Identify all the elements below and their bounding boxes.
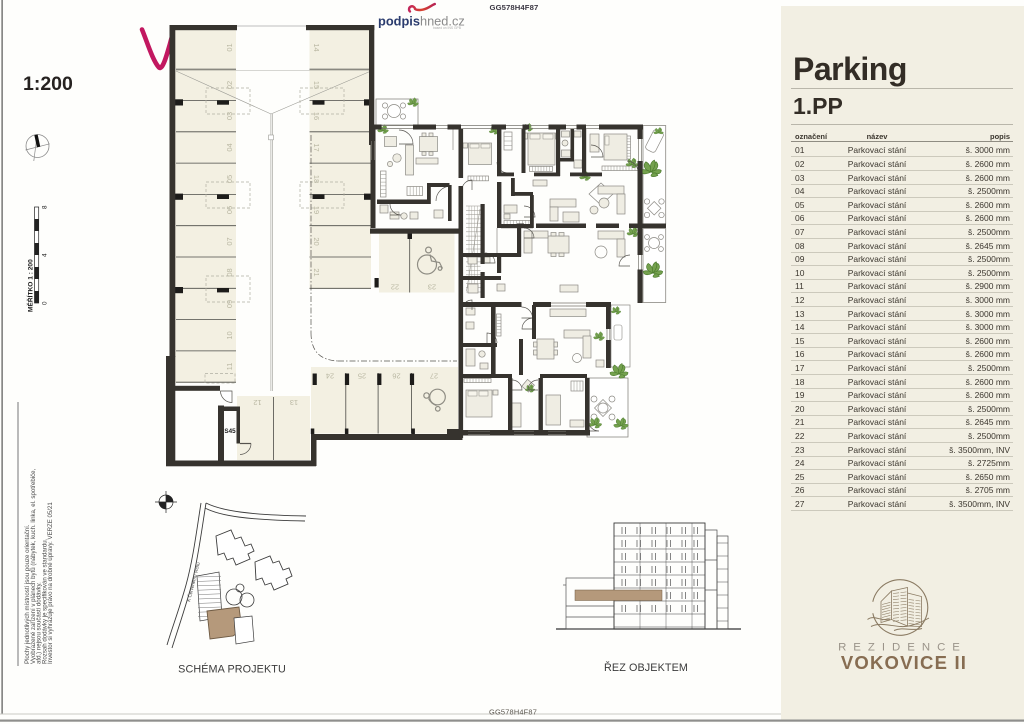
svg-text:08: 08 xyxy=(225,268,234,276)
svg-text:22: 22 xyxy=(391,283,399,292)
svg-text:06: 06 xyxy=(225,206,234,214)
svg-text:16: 16 xyxy=(312,112,321,120)
svg-text:VOKOVICE II: VOKOVICE II xyxy=(841,652,967,673)
svg-text:19: 19 xyxy=(312,206,321,214)
svg-text:1:200: 1:200 xyxy=(23,73,73,95)
svg-text:25: 25 xyxy=(358,372,366,381)
svg-text:26: 26 xyxy=(392,372,400,381)
svg-text:ŘEZ OBJEKTEM: ŘEZ OBJEKTEM xyxy=(604,661,688,674)
svg-text:05: 05 xyxy=(225,175,234,183)
svg-text:24: 24 xyxy=(326,372,334,381)
svg-text:20: 20 xyxy=(312,237,321,245)
svg-text:GG578H4F87: GG578H4F87 xyxy=(490,3,539,12)
svg-text:23: 23 xyxy=(428,283,436,292)
svg-text:S45: S45 xyxy=(224,428,236,435)
svg-text:Investor si vyhrazuje právo na: Investor si vyhrazuje právo na drobné úp… xyxy=(47,502,54,664)
svg-text:21: 21 xyxy=(312,268,321,276)
svg-text:18: 18 xyxy=(312,175,321,183)
svg-text:8: 8 xyxy=(42,205,49,209)
svg-text:17: 17 xyxy=(312,143,321,151)
svg-text:12: 12 xyxy=(253,398,261,407)
svg-text:11: 11 xyxy=(225,363,234,371)
svg-text:09: 09 xyxy=(225,300,234,308)
svg-text:MĚŘÍTKO 1 : 200: MĚŘÍTKO 1 : 200 xyxy=(26,259,35,312)
svg-text:0: 0 xyxy=(42,301,49,305)
svg-text:04: 04 xyxy=(225,143,234,151)
svg-text:27: 27 xyxy=(430,372,438,381)
svg-text:07: 07 xyxy=(225,237,234,245)
svg-text:4: 4 xyxy=(42,253,49,257)
svg-text:10: 10 xyxy=(225,331,234,339)
svg-text:03: 03 xyxy=(225,112,234,120)
svg-text:14: 14 xyxy=(312,43,321,51)
svg-text:GG578H4F87: GG578H4F87 xyxy=(489,708,537,717)
svg-text:13: 13 xyxy=(290,398,298,407)
svg-text:01: 01 xyxy=(225,43,234,51)
svg-text:15: 15 xyxy=(312,81,321,89)
svg-text:based on INS GPB: based on INS GPB xyxy=(433,26,462,30)
svg-text:SCHÉMA PROJEKTU: SCHÉMA PROJEKTU xyxy=(178,663,286,676)
svg-text:02: 02 xyxy=(225,81,234,89)
